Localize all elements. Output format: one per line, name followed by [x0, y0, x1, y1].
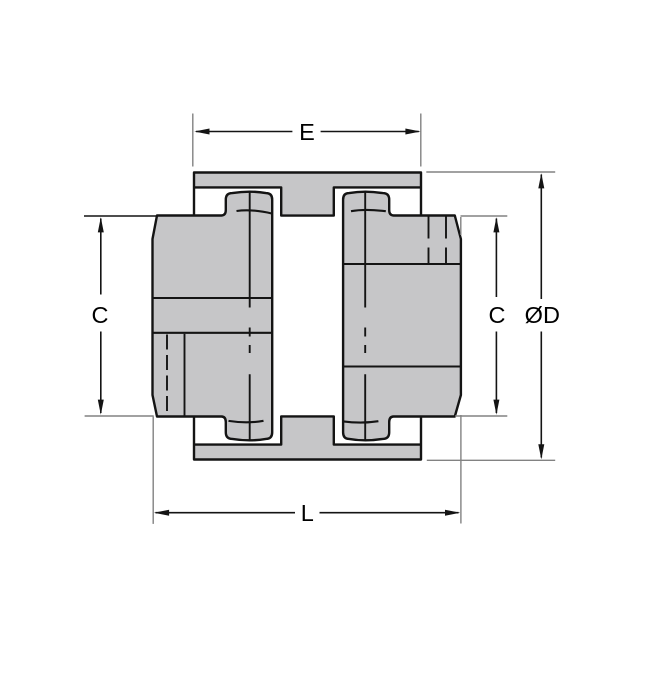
svg-text:C: C	[489, 302, 506, 328]
svg-text:C: C	[92, 302, 109, 328]
svg-text:E: E	[299, 119, 315, 145]
svg-text:L: L	[301, 500, 314, 526]
svg-text:ØD: ØD	[525, 302, 560, 328]
